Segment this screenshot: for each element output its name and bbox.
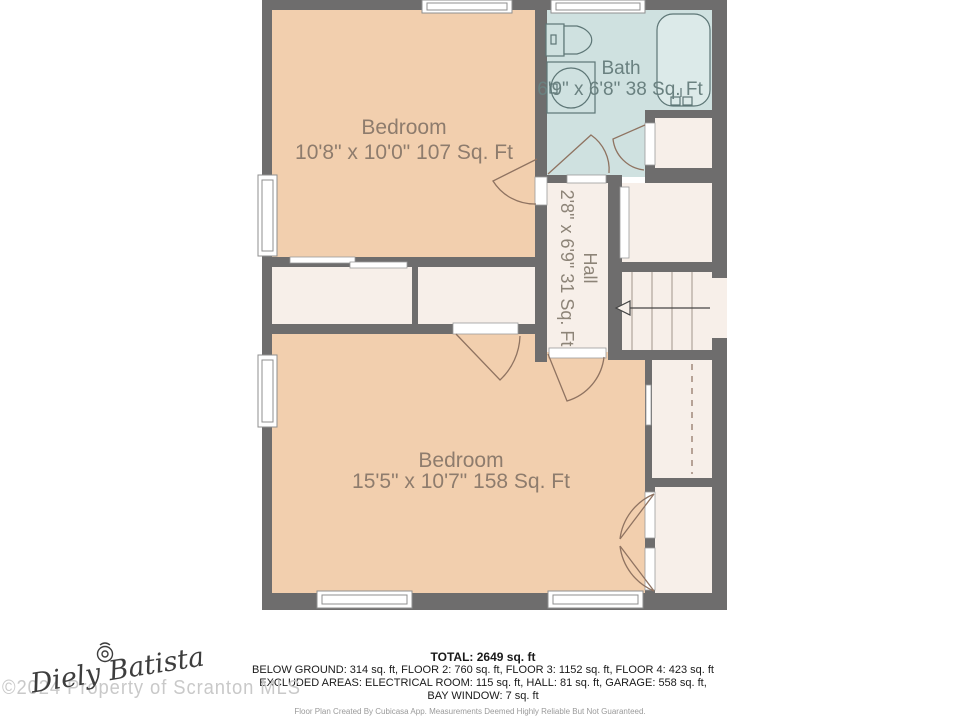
closet-c-door-leaf-2 (645, 548, 655, 590)
camera-icon (92, 641, 118, 663)
linen-closet-floor (655, 118, 712, 168)
bedroom-top-floor (272, 10, 535, 257)
total-area-text: TOTAL: 2649 sq. ft (431, 650, 536, 664)
window-left-1 (258, 175, 277, 256)
bedroom-bottom-floor (272, 334, 645, 593)
hall-door-opening (549, 348, 606, 358)
bedroom-top-door-opening (535, 177, 547, 205)
window-bottom-2 (548, 591, 643, 608)
bathtub-icon (657, 14, 710, 106)
disclaimer-text: Floor Plan Created By Cubicasa App. Meas… (294, 707, 645, 716)
closet-b-door-leaf (620, 187, 629, 258)
stair-landing (712, 278, 727, 338)
closet-b-floor (622, 183, 712, 262)
low-space-floor (652, 360, 712, 478)
toilet-icon (546, 24, 592, 56)
closet-c-floor (655, 487, 712, 593)
linen-closet-door-opening (645, 123, 655, 165)
window-top-2 (551, 0, 645, 13)
sliding-door-panel-1 (290, 257, 355, 263)
closet-right-door-opening (453, 323, 518, 334)
excluded-areas-text-2: BAY WINDOW: 7 sq. ft (427, 690, 538, 702)
excluded-areas-text-1: EXCLUDED AREAS: ELECTRICAL ROOM: 115 sq.… (259, 677, 707, 689)
low-space-opening (646, 385, 651, 425)
hall-label: Hall (578, 190, 601, 347)
sliding-door-panel-2 (350, 262, 407, 268)
window-top-1 (422, 0, 512, 13)
floor-areas-text: BELOW GROUND: 314 sq. ft, FLOOR 2: 760 s… (252, 664, 714, 676)
floor-plan-canvas (0, 0, 960, 630)
window-left-2 (258, 355, 277, 427)
hall-label-block: Hall 2'8" x 6'9" 31 Sq. Ft (555, 190, 601, 347)
closet-right-floor (418, 267, 535, 324)
hall-dimensions: 2'8" x 6'9" 31 Sq. Ft (555, 190, 578, 347)
window-bottom-1 (317, 591, 412, 608)
stairs-floor (622, 272, 712, 350)
bath-door-opening (567, 175, 606, 183)
closet-left-floor (272, 267, 412, 324)
